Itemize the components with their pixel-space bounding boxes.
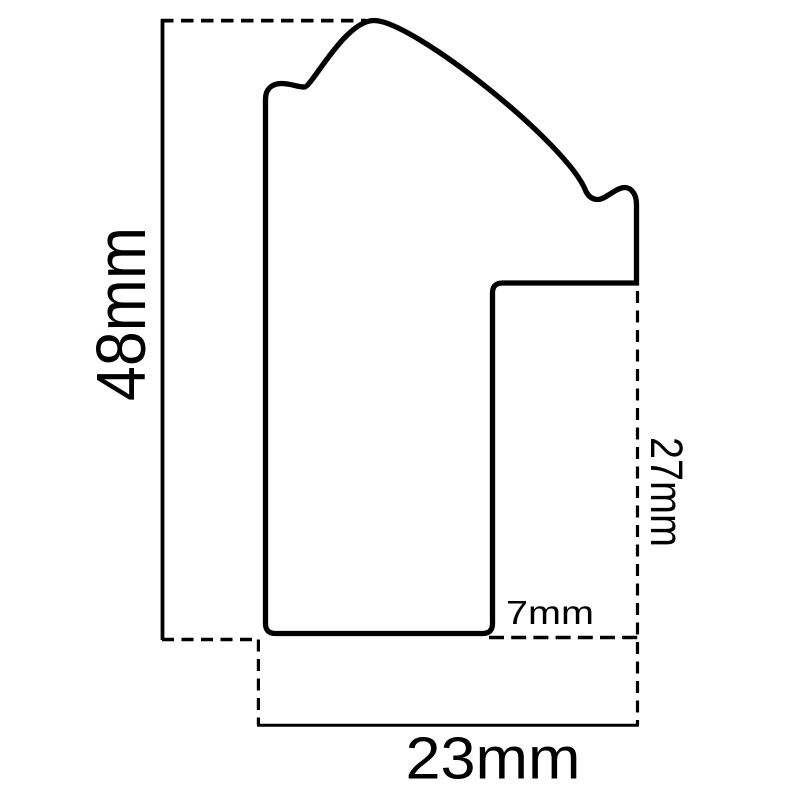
svg-text:48mm: 48mm <box>82 227 160 401</box>
svg-text:23mm: 23mm <box>406 726 581 792</box>
svg-text:7mm: 7mm <box>506 594 594 631</box>
svg-text:27mm: 27mm <box>641 437 692 547</box>
